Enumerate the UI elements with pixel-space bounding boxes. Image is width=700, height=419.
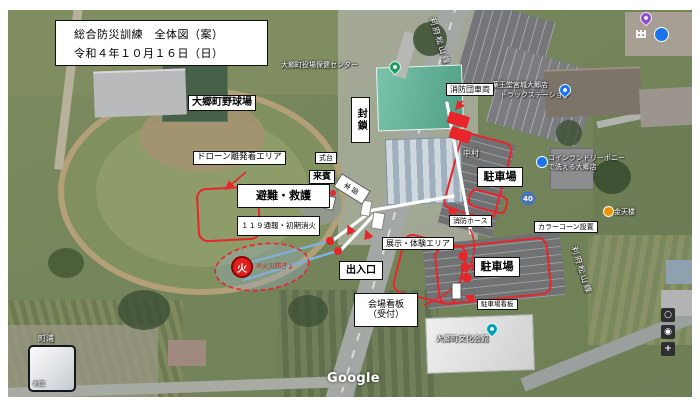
report-119-label: １１９通報・初期消火 [237,216,320,236]
tree-cluster [118,290,170,330]
title-line2: 令和４年１０月１６日（日） [74,45,267,61]
fire-character: 火 [237,260,247,275]
place-label-town-office-center[interactable]: 大郷町役場保健センター [281,60,358,70]
grid-icon [636,30,646,38]
tree-cluster [288,295,328,327]
parking-sign-label: 駐車場看板 [477,299,518,310]
map-controls: ○ ◉ + [661,308,675,359]
inset-label: 地図 [33,379,45,388]
title-box: 総合防災訓練 全体図（案） 令和４年１０月１６日（日） [55,20,268,66]
parking-upper-label: 駐車場 [477,167,523,187]
place-label-restaurant[interactable]: 金天楼 [614,207,635,217]
tree-cluster [593,160,631,194]
fire-defense-label: ②火災防ぎょ [256,260,294,270]
parking-lower-label: 駐車場 [474,257,520,277]
laundry-poi-icon[interactable] [536,156,548,168]
exhibit-area-label: 展示・体験エリア [382,237,454,250]
place-label-machiura: 町浦 [38,333,54,344]
house-right-2 [666,260,692,284]
route-40-badge: 40 [520,192,536,205]
google-logo[interactable]: Google [327,371,380,386]
fire-brigade-label: 消防団車両 [446,83,494,96]
compass-button[interactable]: ○ [661,308,675,322]
guests-label: 来賓 [309,170,335,184]
tree-cluster [556,120,582,146]
restaurant-poi-icon[interactable] [603,206,614,217]
fire-hose-label: 消防ホース [449,215,492,227]
venue-sign-line1: 会場看板 [368,300,404,310]
my-location-button[interactable]: ◉ [661,325,675,339]
color-cones-label: カラーコーン設置 [534,221,598,233]
place-label-culture-hall[interactable]: 大郷町文化会館 [436,333,489,344]
blue-poi-icon-topright[interactable] [654,27,669,42]
culture-hall-building [425,314,535,374]
title-line1: 総合防災訓練 全体図（案） [74,26,267,42]
stage-label: 式台 [315,152,337,164]
gray-building-topleft [93,68,187,117]
drone-area-label: ドローン離発着エリア [193,151,286,165]
place-label-drugstore[interactable]: 薬王堂宮城大郷店 [492,80,548,90]
entrance-label: 出入口 [339,261,383,280]
zoom-in-button[interactable]: + [661,342,675,356]
evacuation-label: 避難・救護 [237,184,330,208]
venue-sign-line2: （受付） [368,310,404,320]
house-right-1 [639,87,692,128]
blockade-label: 封鎖 [351,97,370,143]
venue-sign-label: 会場看板 （受付） [354,293,418,327]
place-label-laundry-2: で洗える大郷店 [548,162,597,172]
satellite-map[interactable]: 大郷町役場保健センター 中村 町浦 大郷町文化会館 薬王堂宮城大郷店 トラックス… [8,10,692,397]
fire-marker: 火 [231,256,253,278]
house-bottom-red [168,340,206,366]
disaster-drill-map-screenshot: { "title": { "line1": "総合防災訓練 全体図（案）", "… [0,0,700,419]
ballpark-label: 大郷町野球場 [188,95,256,111]
tree-cluster [48,248,84,278]
map-inset-toggle[interactable]: 地図 [28,345,76,392]
gym-building [376,65,464,132]
